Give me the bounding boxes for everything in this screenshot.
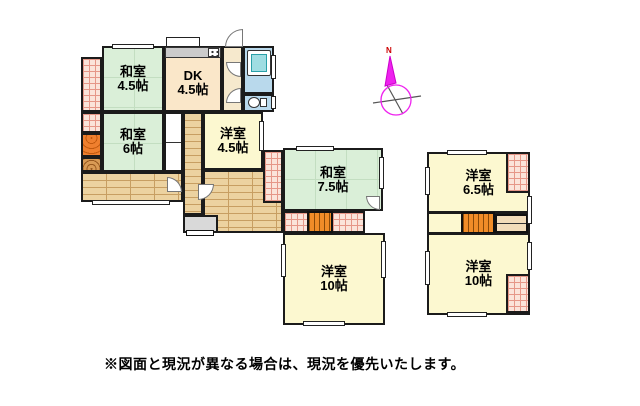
room-japanese-6: 和室 6帖 bbox=[102, 112, 164, 172]
window bbox=[425, 167, 430, 195]
room-name: 洋室 bbox=[465, 260, 492, 274]
stove-burner-icon bbox=[208, 48, 219, 57]
oshiire-closet bbox=[164, 112, 183, 172]
window bbox=[281, 244, 286, 277]
veranda-tile-strip-upper bbox=[81, 57, 102, 112]
staircase-2f bbox=[461, 212, 495, 234]
room-size: 4.5帖 bbox=[217, 141, 248, 155]
room-name: 和室 bbox=[117, 65, 148, 79]
window bbox=[381, 241, 386, 278]
kitchen-bay-window bbox=[166, 37, 200, 47]
room-size: 6.5帖 bbox=[463, 183, 494, 197]
window bbox=[303, 321, 345, 326]
disclaimer-note: ※図面と現況が異なる場合は、現況を優先いたします。 bbox=[104, 354, 465, 374]
room-size: 4.5帖 bbox=[177, 83, 208, 97]
window bbox=[447, 312, 487, 317]
room-size: 6帖 bbox=[120, 142, 146, 156]
window bbox=[112, 44, 154, 49]
tile-closet-2f-upper bbox=[506, 152, 530, 193]
veranda-tile-strip-lower bbox=[81, 112, 102, 133]
room-name: 洋室 bbox=[320, 265, 347, 279]
entrance-door bbox=[186, 230, 214, 236]
room-size: 4.5帖 bbox=[117, 79, 148, 93]
room-western-4-5: 洋室 4.5帖 bbox=[203, 112, 263, 170]
staircase-1f bbox=[307, 211, 333, 233]
tile-closet-2f-lower bbox=[506, 274, 530, 313]
room-name: 和室 bbox=[317, 166, 348, 180]
window bbox=[447, 150, 487, 155]
room-size: 10帖 bbox=[465, 274, 492, 288]
window bbox=[379, 157, 384, 189]
room-name: 洋室 bbox=[217, 127, 248, 141]
compass-north-label: N bbox=[386, 46, 392, 55]
window bbox=[271, 55, 276, 79]
toilet-tank bbox=[260, 98, 267, 107]
window bbox=[271, 96, 276, 109]
window bbox=[425, 251, 430, 285]
window bbox=[296, 146, 334, 151]
toilet-icon bbox=[248, 97, 260, 108]
bathtub-basin bbox=[251, 54, 267, 72]
window bbox=[92, 200, 170, 205]
window bbox=[527, 196, 532, 224]
room-western-10-1f: 洋室 10帖 bbox=[283, 233, 385, 325]
compass-needle-icon: N bbox=[355, 42, 430, 122]
room-size: 10帖 bbox=[320, 279, 347, 293]
tile-strip-center bbox=[263, 150, 283, 203]
room-japanese-4-5: 和室 4.5帖 bbox=[102, 46, 164, 112]
room-size: 7.5帖 bbox=[317, 180, 348, 194]
window bbox=[259, 121, 264, 151]
floor-plan-canvas: 和室 4.5帖 DK 4.5帖 和室 6帖 洋室 4.5帖 和室 7.5帖 洋室… bbox=[0, 0, 640, 406]
room-name: 洋室 bbox=[463, 169, 494, 183]
room-name: 和室 bbox=[120, 128, 146, 142]
closet-2f bbox=[495, 214, 528, 233]
tokonoma-alcove bbox=[81, 133, 102, 157]
room-name: DK bbox=[177, 69, 208, 83]
back-door-arc bbox=[225, 29, 243, 47]
window bbox=[527, 242, 532, 270]
wood-grain-closet bbox=[81, 157, 102, 172]
